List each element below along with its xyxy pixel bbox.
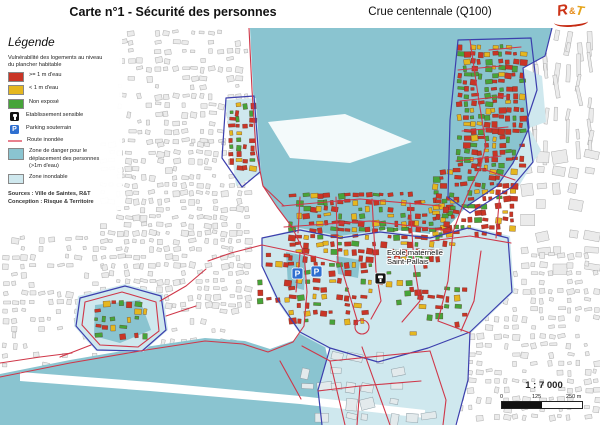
city-block-building: [141, 158, 146, 163]
legend-swatch: [8, 85, 24, 95]
vulnerable-building: [317, 228, 322, 234]
vulnerable-building: [520, 52, 527, 57]
vulnerable-building: [499, 72, 505, 76]
city-block-building: [218, 50, 224, 54]
city-block-building: [568, 183, 577, 194]
city-block-building: [84, 273, 89, 279]
vulnerable-building: [365, 235, 369, 239]
city-block-building: [213, 223, 218, 229]
city-block-building: [220, 329, 225, 332]
city-block-building: [181, 112, 188, 119]
vulnerable-building: [387, 271, 391, 274]
city-block-building: [213, 199, 218, 203]
city-block-building: [197, 294, 201, 299]
vulnerable-building: [243, 159, 248, 163]
vulnerable-building: [457, 51, 465, 56]
legend-item-2: Non exposé: [8, 99, 120, 109]
city-block-building: [149, 198, 154, 204]
city-block-building: [206, 191, 210, 195]
city-block-building: [495, 370, 502, 375]
city-block-building: [189, 175, 194, 180]
legend-item-1: < 1 m d'eau: [8, 85, 120, 95]
scale-bar: [501, 401, 583, 409]
vulnerable-building: [477, 151, 482, 156]
city-block-building: [540, 262, 548, 268]
flood-zone-building: [361, 414, 368, 421]
vulnerable-building: [110, 317, 115, 321]
vulnerable-building: [249, 139, 255, 143]
city-block-building: [531, 272, 538, 275]
city-block-building: [235, 66, 243, 73]
flood-zone-building: [391, 383, 403, 389]
vulnerable-building: [316, 221, 323, 226]
city-block-building: [102, 272, 109, 277]
city-block-building: [550, 343, 557, 346]
city-block-building: [554, 30, 560, 41]
city-block-building: [140, 240, 144, 244]
city-block-building: [12, 332, 16, 338]
city-block-building: [196, 190, 203, 194]
city-block-building: [204, 223, 212, 229]
vulnerable-building: [290, 243, 296, 247]
city-block-building: [157, 239, 162, 245]
city-block-building: [147, 76, 153, 82]
vulnerable-building: [482, 183, 486, 189]
city-block-building: [245, 191, 252, 195]
vulnerable-building: [135, 301, 143, 307]
city-block-building: [537, 183, 547, 189]
city-block-building: [128, 40, 133, 45]
vulnerable-building: [463, 80, 467, 84]
vulnerable-building: [462, 313, 467, 316]
vulnerable-building: [313, 302, 320, 305]
vulnerable-building: [477, 121, 482, 125]
city-block-building: [133, 199, 139, 206]
city-block-building: [208, 94, 212, 100]
city-block-building: [183, 94, 190, 97]
city-block-building: [486, 398, 491, 404]
vulnerable-building: [511, 169, 518, 175]
vulnerable-building: [489, 225, 494, 229]
city-block-building: [2, 264, 8, 270]
city-block-building: [522, 370, 526, 373]
city-block-building: [221, 207, 228, 213]
city-block-building: [549, 297, 553, 301]
city-block-building: [552, 166, 566, 177]
city-block-building: [204, 158, 209, 164]
city-block-building: [116, 280, 120, 283]
city-block-building: [198, 159, 202, 165]
city-block-building: [229, 262, 234, 268]
city-block-building: [126, 216, 133, 220]
city-block-building: [568, 167, 579, 179]
vulnerable-building: [506, 158, 512, 161]
vulnerable-building: [237, 151, 242, 156]
vulnerable-building: [242, 165, 247, 170]
city-block-building: [200, 67, 204, 73]
city-block-building: [505, 344, 509, 350]
vulnerable-building: [447, 170, 453, 175]
city-block-building: [164, 139, 169, 144]
vulnerable-building: [360, 318, 364, 324]
city-block-building: [20, 254, 27, 260]
city-block-building: [209, 49, 213, 54]
map-scale: 1 : 7 000 0 125 250 m: [494, 380, 594, 409]
vulnerable-building: [513, 123, 516, 128]
sensitive-facility-icon: [375, 273, 386, 284]
vulnerable-building: [236, 116, 240, 122]
vulnerable-building: [266, 263, 273, 267]
city-block-building: [11, 326, 17, 331]
city-block-building: [566, 343, 571, 349]
city-block-building: [235, 48, 240, 53]
vulnerable-building: [509, 226, 515, 232]
city-block-building: [522, 279, 527, 285]
city-block-building: [182, 176, 189, 180]
vulnerable-building: [126, 302, 132, 308]
vulnerable-building: [482, 196, 486, 201]
city-block-building: [549, 334, 555, 339]
legend-swatch: [8, 148, 24, 160]
vulnerable-building: [388, 214, 394, 217]
vulnerable-building: [478, 136, 485, 139]
city-block-building: [165, 223, 172, 227]
vulnerable-building: [289, 295, 297, 299]
vulnerable-building: [442, 199, 447, 203]
city-block-building: [532, 326, 536, 330]
vulnerable-building: [111, 325, 116, 331]
city-block-building: [190, 85, 194, 90]
legend-item-0: >= 1 m d'eau: [8, 72, 120, 82]
city-block-building: [155, 102, 161, 105]
vulnerable-building: [388, 235, 392, 238]
city-block-building: [189, 224, 194, 229]
city-block-building: [213, 215, 217, 220]
city-block-building: [221, 263, 229, 270]
vulnerable-building: [453, 210, 459, 214]
city-block-building: [236, 270, 244, 276]
vulnerable-building: [415, 214, 420, 219]
city-block-building: [205, 150, 212, 155]
legend-swatch: [8, 174, 24, 184]
city-block-building: [117, 231, 123, 237]
city-block-building: [584, 253, 589, 259]
vulnerable-building: [500, 143, 506, 148]
vulnerable-building: [478, 74, 482, 80]
city-block-building: [577, 54, 581, 77]
city-block-building: [213, 151, 218, 157]
legend-sources: Sources : Ville de Saintes, R&T Concepti…: [8, 190, 120, 207]
city-block-building: [164, 198, 170, 202]
city-block-building: [3, 309, 8, 313]
city-block-building: [213, 206, 218, 211]
vulnerable-building: [400, 192, 403, 195]
vulnerable-building: [454, 295, 460, 301]
vulnerable-building: [230, 111, 233, 114]
vulnerable-building: [359, 208, 363, 211]
city-block-building: [132, 230, 139, 236]
vulnerable-building: [498, 79, 504, 83]
vulnerable-building: [505, 73, 512, 79]
conception-line: Conception : Risque & Territoire: [8, 198, 120, 206]
city-block-building: [12, 256, 19, 260]
city-block-building: [173, 256, 179, 261]
legend-item-label: Parking souterrain: [26, 125, 110, 132]
city-block-building: [146, 120, 150, 125]
city-block-building: [214, 239, 218, 245]
city-block-building: [191, 93, 196, 99]
city-block-building: [558, 316, 564, 322]
city-block-building: [141, 255, 146, 258]
vulnerable-building: [275, 261, 282, 267]
city-block-building: [583, 230, 600, 242]
vulnerable-building: [235, 110, 239, 116]
city-block-building: [585, 414, 592, 419]
city-block-building: [584, 343, 588, 346]
city-block-building: [201, 58, 206, 62]
vulnerable-building: [345, 303, 350, 306]
legend-panel: Légende Vulnérabilité des logements au n…: [4, 33, 122, 210]
vulnerable-building: [464, 86, 468, 91]
city-block-building: [3, 319, 9, 325]
city-block-building: [108, 239, 112, 242]
city-block-building: [218, 67, 223, 73]
city-block-building: [566, 65, 571, 82]
vulnerable-building: [499, 115, 504, 119]
city-block-building: [157, 279, 164, 286]
vulnerable-building: [372, 250, 378, 256]
city-block-building: [164, 59, 170, 65]
vulnerable-building: [484, 52, 490, 57]
city-block-building: [67, 245, 72, 250]
vulnerable-building: [455, 183, 459, 186]
city-block-building: [111, 263, 115, 268]
city-block-building: [237, 198, 243, 204]
city-block-building: [548, 361, 553, 367]
vulnerable-building: [345, 270, 352, 276]
city-block-building: [530, 343, 536, 349]
city-block-building: [66, 237, 72, 240]
city-block-building: [165, 182, 169, 186]
vulnerable-building: [304, 235, 309, 240]
city-block-building: [124, 231, 129, 237]
city-block-building: [196, 280, 202, 284]
city-block-building: [181, 128, 188, 133]
vulnerable-building: [475, 183, 481, 187]
vulnerable-building: [461, 219, 466, 222]
vulnerable-building: [440, 170, 446, 175]
vulnerable-building: [393, 235, 399, 241]
city-block-building: [191, 31, 195, 35]
city-block-building: [557, 370, 563, 375]
city-block-building: [173, 93, 180, 99]
flood-zone-building: [406, 413, 418, 422]
city-block-building: [148, 189, 155, 194]
city-block-building: [141, 174, 146, 180]
city-block-building: [126, 255, 132, 258]
city-block-building: [158, 199, 162, 205]
vulnerable-building: [410, 332, 417, 336]
city-block-building: [585, 167, 595, 174]
city-block-building: [155, 30, 160, 36]
city-block-building: [165, 191, 168, 194]
city-block-building: [30, 254, 36, 260]
city-block-building: [67, 263, 74, 267]
vulnerable-building: [477, 45, 481, 49]
city-block-building: [157, 158, 164, 163]
vulnerable-building: [457, 136, 462, 140]
city-block-building: [21, 290, 28, 295]
city-block-building: [48, 299, 53, 305]
vulnerable-building: [492, 74, 498, 78]
vulnerable-building: [436, 200, 442, 203]
vulnerable-building: [401, 213, 406, 218]
city-block-building: [206, 279, 209, 282]
vulnerable-building: [505, 51, 511, 54]
city-block-building: [172, 176, 177, 181]
vulnerable-building: [401, 227, 409, 231]
city-block-building: [531, 414, 537, 418]
city-block-building: [39, 317, 44, 322]
city-block-building: [575, 289, 579, 292]
city-block-building: [29, 264, 35, 267]
city-block-building: [557, 333, 565, 338]
vulnerable-building: [458, 86, 465, 89]
vulnerable-building: [345, 228, 350, 231]
vulnerable-building: [498, 129, 505, 135]
vulnerable-building: [520, 129, 526, 133]
vulnerable-building: [419, 304, 426, 309]
city-block-building: [164, 151, 170, 157]
vulnerable-building: [143, 308, 147, 314]
vulnerable-building: [346, 310, 350, 314]
city-block-building: [189, 261, 196, 268]
city-block-building: [584, 307, 592, 311]
city-block-building: [521, 263, 529, 269]
city-block-building: [148, 271, 153, 276]
city-block-building: [174, 263, 181, 269]
vulnerable-building: [323, 193, 330, 198]
vulnerable-building: [344, 262, 350, 268]
vulnerable-building: [468, 169, 472, 173]
city-block-building: [229, 246, 234, 252]
city-block-building: [101, 255, 106, 259]
vulnerable-building: [432, 211, 439, 215]
vulnerable-building: [457, 79, 461, 83]
city-block-building: [134, 191, 139, 195]
city-block-building: [554, 107, 558, 121]
vulnerable-building: [470, 121, 475, 126]
city-block-building: [222, 287, 228, 291]
vulnerable-building: [288, 262, 294, 266]
vulnerable-building: [229, 152, 234, 156]
city-block-building: [221, 302, 226, 305]
legend-item-label: Route inondée: [27, 137, 111, 144]
vulnerable-building: [414, 221, 419, 226]
city-block-building: [236, 205, 244, 212]
vulnerable-building: [512, 86, 517, 91]
vulnerable-building: [471, 135, 478, 142]
vulnerable-building: [471, 87, 475, 90]
vulnerable-building: [407, 242, 412, 248]
vulnerable-building: [330, 320, 335, 325]
city-block-building: [594, 289, 600, 295]
city-block-building: [30, 317, 35, 321]
city-block-building: [84, 236, 88, 239]
city-block-building: [576, 142, 581, 159]
city-block-building: [504, 325, 509, 328]
vulnerable-building: [444, 222, 450, 227]
city-block-building: [549, 316, 556, 320]
vulnerable-building: [495, 176, 499, 180]
vulnerable-building: [491, 87, 497, 90]
city-block-building: [156, 112, 163, 117]
vulnerable-building: [229, 130, 233, 135]
city-block-building: [567, 279, 573, 284]
vulnerable-building: [288, 286, 295, 290]
vulnerable-building: [428, 295, 435, 299]
vulnerable-building: [503, 183, 510, 188]
city-block-building: [477, 333, 484, 340]
vulnerable-building: [492, 114, 498, 117]
city-block-building: [138, 120, 142, 124]
vulnerable-building: [427, 315, 433, 321]
city-block-building: [503, 335, 508, 339]
city-block-building: [530, 361, 537, 365]
city-block-building: [208, 66, 215, 72]
vulnerable-building: [329, 311, 333, 314]
sources-line: Sources : Ville de Saintes, R&T: [8, 190, 120, 198]
vulnerable-building: [506, 137, 510, 143]
city-block-building: [149, 175, 155, 182]
vulnerable-building: [329, 263, 334, 266]
vulnerable-building: [229, 138, 233, 142]
city-block-building: [540, 317, 544, 321]
city-block-building: [165, 303, 172, 309]
city-block-building: [156, 232, 160, 236]
city-block-building: [11, 272, 17, 276]
city-block-building: [190, 182, 194, 185]
city-block-building: [569, 230, 578, 238]
city-block-building: [189, 191, 194, 197]
city-block-building: [180, 264, 186, 268]
city-block-building: [196, 248, 201, 252]
city-block-building: [157, 287, 163, 293]
city-block-building: [163, 30, 170, 36]
vulnerable-building: [329, 271, 336, 277]
vulnerable-building: [95, 309, 101, 313]
vulnerable-building: [456, 102, 462, 107]
vulnerable-building: [250, 158, 255, 161]
city-block-building: [196, 200, 200, 204]
city-block-building: [468, 378, 476, 383]
city-block-building: [522, 415, 526, 421]
vulnerable-building: [134, 309, 141, 315]
city-block-building: [172, 215, 178, 219]
city-block-building: [557, 288, 563, 292]
vulnerable-building: [313, 287, 319, 290]
city-block-building: [220, 309, 227, 314]
city-block-building: [513, 271, 518, 277]
city-block-building: [146, 67, 152, 72]
city-block-building: [209, 121, 215, 126]
vulnerable-building: [500, 135, 506, 139]
city-block-building: [157, 214, 161, 217]
city-block-building: [548, 252, 554, 256]
city-block-building: [188, 231, 194, 236]
city-block-building: [39, 327, 45, 332]
vulnerable-building: [329, 280, 336, 283]
